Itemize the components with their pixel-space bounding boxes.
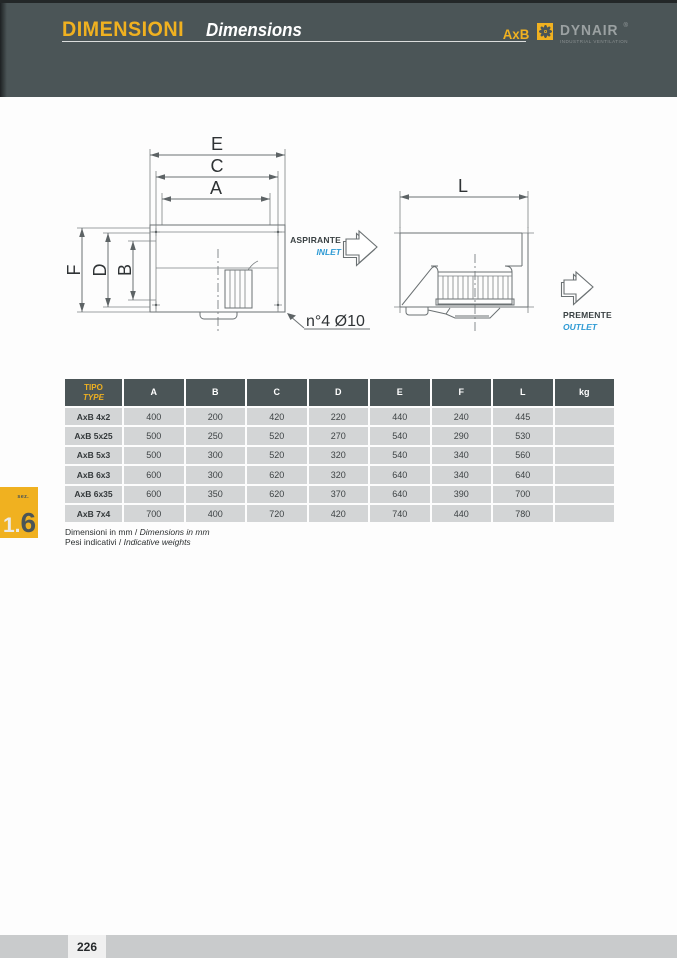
row-value: 640: [493, 466, 553, 483]
table-body: AxB 4x2400200420220440240445AxB 5x255002…: [65, 408, 614, 522]
dim-label-c: C: [211, 156, 224, 176]
front-view: E C A: [64, 134, 370, 331]
row-tipo: AxB 6x35: [65, 486, 122, 503]
row-value: 300: [186, 447, 246, 464]
outlet-label-it: PREMENTE: [563, 310, 612, 320]
page-title: DIMENSIONI Dimensions: [62, 18, 308, 42]
fan-icon: [537, 23, 553, 40]
row-value: 440: [370, 408, 430, 425]
row-value: 200: [186, 408, 246, 425]
page-header: DIMENSIONI Dimensions AxB: [0, 0, 677, 97]
row-value: 400: [124, 408, 184, 425]
dim-label-e: E: [211, 134, 223, 154]
table-header: TIPO TYPE A B C D E F L kg: [65, 379, 614, 406]
row-value: 700: [493, 486, 553, 503]
dim-label-a: A: [210, 178, 222, 198]
section-tab: sez. 1. 6: [0, 487, 38, 538]
row-value: 620: [247, 466, 307, 483]
col-header-tipo-it: TIPO: [84, 383, 103, 392]
footnotes: Dimensioni in mm / Dimensions in mm Pesi…: [65, 527, 210, 547]
row-value: 445: [493, 408, 553, 425]
row-value: 220: [309, 408, 369, 425]
brand-tagline: INDUSTRIAL VENTILATION: [560, 40, 628, 45]
row-value: 340: [432, 466, 492, 483]
row-value: 300: [186, 466, 246, 483]
row-value: 340: [432, 447, 492, 464]
row-value: 700: [124, 505, 184, 522]
row-value: 560: [493, 447, 553, 464]
col-header: A: [124, 379, 184, 406]
section-number-minor: 6: [21, 509, 36, 537]
row-value: 440: [432, 505, 492, 522]
model-label: AxB: [503, 26, 530, 42]
hole-note-text: n°4 Ø10: [306, 313, 365, 330]
footnote-weights: Pesi indicativi / Indicative weights: [65, 537, 210, 547]
dim-label-d: D: [90, 264, 110, 277]
dim-label-l: L: [458, 176, 468, 196]
row-value: 740: [370, 505, 430, 522]
side-view: L: [394, 176, 534, 331]
col-header: E: [370, 379, 430, 406]
inlet-label-en: INLET: [316, 247, 341, 257]
footnote-weights-en: Indicative weights: [124, 537, 191, 547]
title-english: Dimensions: [206, 20, 302, 41]
row-value: 780: [493, 505, 553, 522]
section-number-major: 1.: [3, 515, 21, 536]
row-value: [555, 466, 615, 483]
row-value: 620: [247, 486, 307, 503]
col-header: F: [432, 379, 492, 406]
dim-label-b: B: [115, 264, 135, 276]
row-value: 390: [432, 486, 492, 503]
row-value: 540: [370, 427, 430, 444]
row-value: 500: [124, 427, 184, 444]
row-tipo: AxB 5x3: [65, 447, 122, 464]
col-header: D: [309, 379, 369, 406]
brand-group: AxB D: [502, 23, 628, 45]
row-value: 320: [309, 447, 369, 464]
brand-block: DYNAIR® INDUSTRIAL VENTILATION: [560, 23, 628, 45]
row-value: 320: [309, 466, 369, 483]
registered-mark: ®: [624, 23, 628, 29]
row-value: 720: [247, 505, 307, 522]
row-value: 640: [370, 466, 430, 483]
col-header: B: [186, 379, 246, 406]
col-header: C: [247, 379, 307, 406]
row-value: 250: [186, 427, 246, 444]
arrow-right-icon: [562, 272, 594, 305]
row-value: [555, 447, 615, 464]
title-italian: DIMENSIONI: [62, 18, 184, 42]
catalog-page: DIMENSIONI Dimensions AxB: [0, 0, 677, 958]
row-value: 350: [186, 486, 246, 503]
row-value: 640: [370, 486, 430, 503]
row-value: 290: [432, 427, 492, 444]
col-header: kg: [555, 379, 615, 406]
technical-drawing: E C A: [57, 128, 677, 373]
row-tipo: AxB 7x4: [65, 505, 122, 522]
row-value: [555, 486, 615, 503]
row-value: 400: [186, 505, 246, 522]
brand-name: DYNAIR: [560, 23, 618, 38]
inlet-annotation: ASPIRANTE INLET: [290, 231, 377, 266]
col-header-tipo-en: TYPE: [83, 393, 104, 402]
row-value: 420: [247, 408, 307, 425]
row-value: [555, 408, 615, 425]
outlet-label-en: OUTLET: [563, 322, 598, 332]
row-value: 500: [124, 447, 184, 464]
row-value: [555, 427, 615, 444]
row-value: 600: [124, 466, 184, 483]
col-header: L: [493, 379, 553, 406]
dim-label-f: F: [64, 265, 84, 276]
footnote-dimensions: Dimensioni in mm / Dimensions in mm: [65, 527, 210, 537]
row-value: 540: [370, 447, 430, 464]
outlet-annotation: PREMENTE OUTLET: [562, 272, 612, 332]
section-label: sez.: [17, 494, 29, 500]
row-tipo: AxB 5x25: [65, 427, 122, 444]
row-value: [555, 505, 615, 522]
row-value: 240: [432, 408, 492, 425]
page-number: 226: [68, 935, 106, 958]
row-tipo: AxB 4x2: [65, 408, 122, 425]
row-tipo: AxB 6x3: [65, 466, 122, 483]
section-number: 1. 6: [3, 509, 35, 537]
row-value: 530: [493, 427, 553, 444]
row-value: 270: [309, 427, 369, 444]
inlet-label-it: ASPIRANTE: [290, 235, 341, 245]
row-value: 520: [247, 447, 307, 464]
row-value: 600: [124, 486, 184, 503]
dimensions-table: TIPO TYPE A B C D E F L kg AxB 4x2400200…: [65, 379, 614, 522]
col-header-tipo: TIPO TYPE: [65, 379, 122, 406]
row-value: 420: [309, 505, 369, 522]
arrow-right-icon: [344, 231, 378, 266]
footnote-dimensions-en: Dimensions in mm: [140, 527, 210, 537]
row-value: 370: [309, 486, 369, 503]
footnote-dimensions-it: Dimensioni in mm /: [65, 527, 140, 537]
hole-note: n°4 Ø10: [287, 313, 370, 330]
header-rule: [62, 41, 526, 42]
footnote-weights-it: Pesi indicativi /: [65, 537, 124, 547]
row-value: 520: [247, 427, 307, 444]
